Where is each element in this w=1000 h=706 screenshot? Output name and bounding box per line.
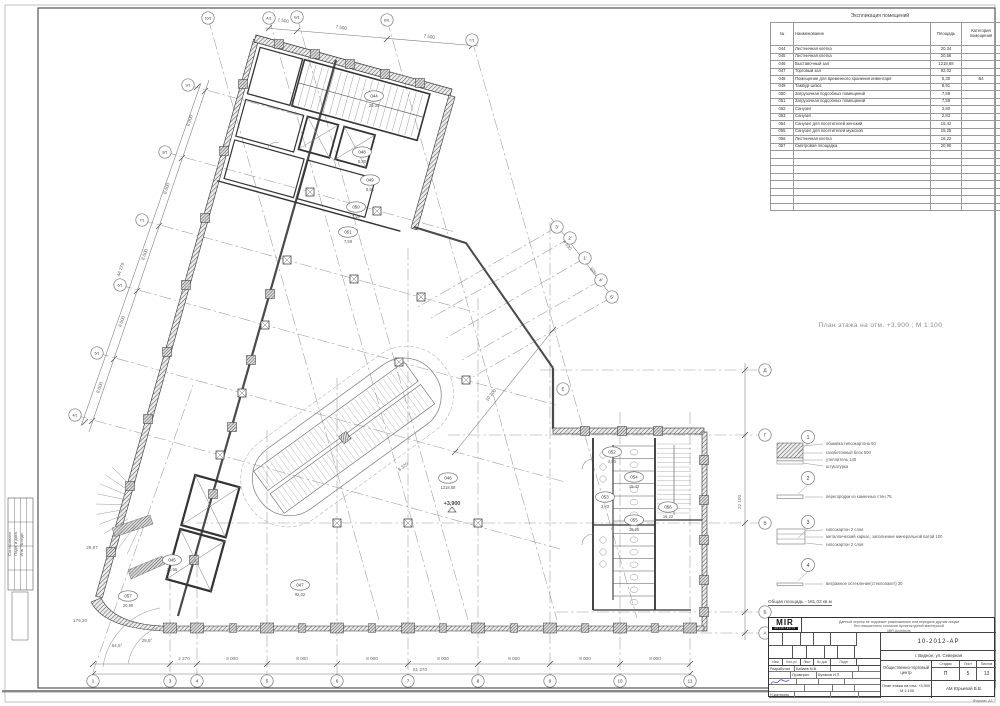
table-row: 053Санузел2,83	[771, 113, 1000, 121]
legend-item-number: 1	[807, 435, 810, 441]
axis-column	[261, 623, 274, 633]
staff-signature-table: РазработалБабаев М.В.ПроверилБунаков И.П…	[769, 666, 881, 698]
title-block: MIR ARCHITECTS Данный чертеж не подлежит…	[768, 617, 995, 697]
legend-item-3-label-1: гипсокартон 2 слоя	[826, 527, 863, 532]
legend-item-3-label-2: металлический каркас, заполнение минерал…	[826, 534, 942, 539]
revision-cell	[793, 646, 807, 659]
explication-cell: 7,59	[931, 91, 962, 99]
explication-cell	[794, 188, 931, 196]
legend-item-number: 4	[807, 563, 810, 569]
explication-cell	[962, 113, 1000, 121]
explication-cell	[931, 166, 962, 174]
dim-label: 8 000	[296, 656, 308, 661]
explication-cell	[771, 173, 794, 181]
room-number: 048	[358, 150, 366, 155]
axis-column	[472, 623, 485, 633]
dim-label: 8 000	[366, 656, 378, 661]
dim-label: 29,5°	[142, 638, 153, 643]
dim-label: 2 270	[178, 656, 190, 661]
sheet-value: 5	[960, 668, 977, 681]
revision-cell	[814, 633, 831, 646]
room-number: 049	[366, 178, 374, 183]
explication-cell	[771, 181, 794, 189]
explication-col-cat: Категория помещения	[962, 23, 1000, 46]
explication-cell	[931, 203, 962, 211]
axis-bubble-label: 5/1	[95, 352, 100, 356]
dim-label: 44 270	[116, 262, 125, 277]
axis-bubble-label: 4/1	[73, 414, 78, 418]
wall-column	[220, 147, 229, 156]
explication-cell	[962, 46, 1000, 54]
object-name: г. Видное, ул. Северная	[881, 651, 996, 661]
elevation-mark: +3,900	[444, 501, 461, 507]
explication-cell: 046	[771, 61, 794, 69]
table-row: 046Выставочный зал1218,68	[771, 61, 1000, 69]
wall-column	[618, 427, 627, 436]
axis-bubble-label: 8/1	[163, 151, 168, 155]
project-name: Общественно-торговый центр	[881, 661, 932, 681]
room-number: 056	[664, 505, 672, 510]
wall-column	[163, 348, 172, 357]
room-area: 20,56	[167, 567, 178, 572]
revision-cell	[831, 633, 857, 646]
explication-cell: Смотровая площадка	[794, 143, 931, 151]
explication-cell: Помещение для временного хранения инвент…	[794, 76, 931, 84]
company-logo: MIR ARCHITECTS	[769, 618, 802, 633]
explication-cell	[794, 151, 931, 159]
change-table-headers: ИзмКол.учЛист№ докПодпДата	[769, 659, 881, 666]
explication-cell: 044	[771, 46, 794, 54]
explication-cell: 20,56	[931, 53, 962, 61]
wall-column	[266, 290, 275, 299]
stair-elevator-core-bottom-left	[96, 467, 239, 592]
dim-label: 179,30	[73, 618, 87, 623]
dim-label: 8 000	[508, 656, 520, 661]
wall-column	[416, 79, 425, 88]
explication-cell	[771, 196, 794, 204]
table-row: 047Торговый зал92,02	[771, 68, 1000, 76]
axis-bubble-label: 6	[336, 679, 339, 684]
explication-cell	[931, 196, 962, 204]
explication-cell	[962, 188, 1000, 196]
room-number: 052	[608, 450, 616, 455]
axis-bubble-label: 10/1	[205, 17, 212, 21]
table-row: 049Тамбур-шлюз8,91	[771, 83, 1000, 91]
axis-bubble-label: 8	[477, 679, 480, 684]
legend-item-2-label-1: перегородки из каменных стен 75	[826, 494, 892, 499]
explication-title: Экспликация помещений	[770, 13, 990, 22]
room-area: 5,30	[358, 159, 367, 164]
wall-column	[239, 80, 248, 89]
room-area: 16,22	[663, 514, 674, 519]
wall-column	[107, 548, 116, 557]
explication-cell: Выставочный зал	[794, 61, 931, 69]
stage-sheet-table: Стадия Лист Листов П 5 13	[932, 661, 996, 681]
table-row-empty	[771, 173, 1000, 181]
change-col-header: № док	[814, 659, 831, 666]
stage-value: П	[932, 668, 960, 681]
explication-cell: Санузел для посетителей мужской	[794, 128, 931, 136]
axis-bubble-label: 9/1	[186, 84, 191, 88]
axis-bubble-label: 1'	[583, 256, 587, 261]
plan-title: План этажа на отм. +3,900 ; М 1:100	[788, 322, 973, 329]
wall-column	[209, 490, 218, 499]
room-area: 1218,68	[441, 485, 457, 490]
side-stamp-label-3: Инв. № подл.	[19, 500, 27, 588]
explication-cell: 048	[771, 76, 794, 84]
wall-column	[144, 415, 153, 424]
explication-cell	[962, 98, 1000, 106]
stair-elevator-core-top	[217, 46, 437, 231]
explication-cell: 057	[771, 143, 794, 151]
explication-cell: 2,80	[931, 106, 962, 114]
explication-cell	[794, 173, 931, 181]
axis-bubble-label: 3	[169, 679, 172, 684]
explication-cell: 051	[771, 98, 794, 106]
room-number: 050	[352, 205, 360, 210]
axis-bubble-label: Е	[561, 387, 564, 392]
axis-column	[684, 623, 697, 633]
explication-cell	[962, 151, 1000, 159]
wall-column	[346, 60, 355, 69]
pilaster	[440, 624, 447, 633]
wall-column	[247, 356, 256, 365]
explication-cell	[794, 196, 931, 204]
wall-column	[311, 50, 320, 59]
table-row: 044Лестничная клетка20,34	[771, 46, 1000, 54]
dim-label: 7 500	[423, 33, 436, 40]
explication-cell	[962, 166, 1000, 174]
explication-col-area: Площадь	[931, 23, 962, 46]
explication-cell: 045	[771, 53, 794, 61]
stage-label: Стадия	[932, 661, 960, 668]
explication-cell	[794, 158, 931, 166]
table-row: 055Санузел для посетителей мужской15,25	[771, 128, 1000, 136]
axis-bubble-label: В	[763, 521, 766, 526]
axis-bubble-label: А/1	[266, 17, 271, 21]
explication-body: 044Лестничная клетка20,34 045Лестничная …	[771, 46, 1000, 211]
legend-item-3-label-3: гипсокартон 2 слоя	[826, 542, 863, 547]
pilaster	[511, 624, 518, 633]
explication-cell	[962, 203, 1000, 211]
wall-column	[201, 214, 210, 223]
explication-cell: 5,30	[931, 76, 962, 84]
legend-graphics	[777, 443, 823, 586]
table-row: 056Лестничная клетка16,22	[771, 136, 1000, 144]
explication-cell: Лестничная клетка	[794, 53, 931, 61]
room-area: 2,80	[608, 459, 617, 464]
explication-cell: Торговый зал	[794, 68, 931, 76]
explication-cell	[771, 203, 794, 211]
explication-col-name: Наименование	[794, 23, 931, 46]
explication-cell	[794, 203, 931, 211]
table-row: 050Загрузочная подсобных помещений7,59	[771, 91, 1000, 99]
format-note: Формат А1	[938, 698, 993, 703]
explication-cell	[962, 173, 1000, 181]
room-number: 044	[370, 94, 378, 99]
room-number: 046	[444, 476, 452, 481]
explication-cell: 16,22	[931, 136, 962, 144]
wall-column	[182, 281, 191, 290]
legend-item-1-label-1: обшивка гипсокартона 50	[826, 441, 876, 446]
explication-cell	[771, 158, 794, 166]
explication-cell: 15,25	[931, 128, 962, 136]
explication-cell	[962, 83, 1000, 91]
explication-cell	[962, 68, 1000, 76]
wall-column	[275, 40, 284, 49]
table-row-empty	[771, 188, 1000, 196]
explication-cell: 052	[771, 106, 794, 114]
room-number: 051	[344, 230, 352, 235]
explication-cell: Загрузочная подсобных помещений	[794, 91, 931, 99]
axis-bubble-label: 6/1	[118, 284, 123, 288]
explication-cell	[794, 181, 931, 189]
pilaster	[582, 624, 589, 633]
dim-label: 1 500	[277, 17, 290, 24]
sheet-name: План этажа на отм. +3,900 ; М 1:100	[881, 681, 932, 698]
wall-column	[700, 536, 709, 545]
explication-cell	[962, 136, 1000, 144]
legend-note: Общая площадь - 181,03 кв.м	[768, 599, 832, 606]
table-row-empty	[771, 166, 1000, 174]
legend-item-number: 2	[807, 476, 810, 482]
explication-cell: 053	[771, 113, 794, 121]
legend-item-4-label-1: витражное остекление(стеклопакет) 30	[826, 581, 903, 586]
explication-cell: 054	[771, 121, 794, 129]
axis-bubble-label: Г/1	[470, 39, 475, 43]
explication-cell	[771, 151, 794, 159]
dim-label: 61 270	[413, 667, 427, 672]
room-number: 055	[630, 518, 638, 523]
room-number: 054	[630, 475, 638, 480]
revision-grid	[769, 633, 881, 659]
room-area: 15,25	[629, 527, 640, 532]
pilaster	[369, 624, 376, 633]
explication-cell	[771, 166, 794, 174]
sheets-label: Листов	[977, 661, 996, 668]
wall-column	[581, 427, 590, 436]
dim-label: 64,5°	[112, 643, 123, 648]
axis-bubble-label: 9	[549, 679, 552, 684]
explication-cell	[962, 53, 1000, 61]
dim-label: 10 300	[484, 388, 497, 402]
axis-bubble-label: Б	[763, 610, 766, 615]
explication-cell	[931, 181, 962, 189]
dim-label: 500	[589, 267, 598, 276]
legend-item-1-label-2: газобетонный блок 500	[826, 450, 871, 455]
document-number: 10-2012-АР	[881, 633, 996, 651]
explication-cell	[771, 188, 794, 196]
dim-label: 8 000	[117, 315, 126, 328]
change-col-header: Изм	[769, 659, 783, 666]
explication-cell	[962, 91, 1000, 99]
explication-cell	[962, 143, 1000, 151]
change-col-header: Подп	[831, 659, 857, 666]
wall-column	[700, 608, 709, 617]
room-area: 20,90	[123, 603, 134, 608]
dim-label: 8 000	[649, 656, 661, 661]
axis-bubble-label: 10	[617, 679, 623, 684]
table-row: 045Лестничная клетка20,56	[771, 53, 1000, 61]
axis-bubble-label: 7/1	[140, 219, 145, 223]
revision-cell	[769, 646, 793, 659]
dim-label: 8 000	[437, 656, 449, 661]
escalators	[222, 328, 471, 545]
dim-label: 8 000	[140, 248, 149, 261]
sheet-label: Лист	[960, 661, 977, 668]
dim-label: 8 000	[185, 114, 194, 127]
explication-cell: Лестничная клетка	[794, 46, 931, 54]
wall-column	[700, 456, 709, 465]
legend-item-1-label-4: штукатурка	[826, 464, 848, 469]
axis-bubble-label: 7	[407, 679, 410, 684]
explication-cell: Санузел	[794, 106, 931, 114]
table-row: 052Санузел2,80	[771, 106, 1000, 114]
axis-column	[164, 623, 177, 633]
revision-cell	[769, 633, 783, 646]
table-row: 051Загрузочная подсобных помещений7,59	[771, 98, 1000, 106]
wall-column	[700, 576, 709, 585]
table-row-empty	[771, 203, 1000, 211]
room-area: 2,83	[601, 504, 610, 509]
room-number: 045	[168, 558, 176, 563]
axis-bubble-label: 5	[266, 679, 269, 684]
pilaster	[299, 624, 306, 633]
table-row-empty	[771, 196, 1000, 204]
explication-cell	[962, 128, 1000, 136]
explication-cell: Санузел	[794, 113, 931, 121]
axis-column	[544, 623, 557, 633]
wall-column	[700, 496, 709, 505]
explication-cell: 1218,68	[931, 61, 962, 69]
axis-bubble-label: 5'	[610, 295, 614, 300]
axis-bubble-label: Б/1	[294, 16, 299, 20]
room-area: 15,42	[629, 484, 640, 489]
explication-cell	[962, 106, 1000, 114]
explication-cell	[931, 188, 962, 196]
axis-bubble-label: В/1	[384, 19, 389, 23]
revision-cell	[807, 646, 825, 659]
room-area: 92,02	[295, 592, 306, 597]
explication-cell	[962, 121, 1000, 129]
room-area: 20,34	[369, 103, 380, 108]
table-row: 054Санузел для посетителей женский15,42	[771, 121, 1000, 129]
logo-text: MIR	[769, 619, 801, 627]
axis-bubble-label: 4	[196, 679, 199, 684]
dim-label: 22 100	[737, 495, 742, 509]
dim-label: 7 500	[335, 24, 348, 31]
explication-cell: Санузел для посетителей женский	[794, 121, 931, 129]
axis-bubble-label: 4'	[599, 278, 603, 283]
copyright-disclaimer: Данный чертеж не подлежит размножению ил…	[802, 618, 996, 633]
explication-cell	[931, 158, 962, 166]
explication-cell: 049	[771, 83, 794, 91]
explication-cell	[962, 61, 1000, 69]
revision-cell	[801, 633, 814, 646]
room-number: 057	[124, 594, 132, 599]
explication-cell	[962, 196, 1000, 204]
legend-item-number: 3	[807, 520, 810, 526]
explication-cell: Загрузочная подсобных помещений	[794, 98, 931, 106]
explication-cell: 15,42	[931, 121, 962, 129]
explication-cell: В4	[962, 76, 1000, 84]
change-col-header: Кол.уч	[783, 659, 801, 666]
signature-scribble	[770, 679, 790, 685]
explication-cell: 92,02	[931, 68, 962, 76]
table-row: 057Смотровая площадка20,90	[771, 143, 1000, 151]
explication-cell: 20,34	[931, 46, 962, 54]
change-col-header: Лист	[801, 659, 814, 666]
explication-col-num: №	[771, 23, 794, 46]
drawing-sheet: 134567891011ДГВБА4/15/16/17/18/19/110/1А…	[0, 0, 1000, 706]
wall-column	[381, 70, 390, 79]
room-area: 8,91	[366, 187, 375, 192]
dim-label: 8 000	[226, 656, 238, 661]
table-row-empty	[771, 181, 1000, 189]
table-row-empty	[771, 158, 1000, 166]
legend-item-1-label-3: утеплитель 140	[826, 457, 856, 462]
explication-cell: 056	[771, 136, 794, 144]
pilaster	[652, 624, 659, 633]
revision-cell	[783, 633, 801, 646]
axis-column	[614, 623, 627, 633]
axis-column	[331, 623, 344, 633]
explication-cell: 8,91	[931, 83, 962, 91]
explication-cell: 2,83	[931, 113, 962, 121]
explication-cell	[962, 158, 1000, 166]
logo-subtext: ARCHITECTS	[772, 627, 798, 630]
axis-bubble-label: 3'	[555, 225, 559, 230]
wall-column	[654, 427, 663, 436]
axis-bubble-label: 1	[92, 679, 95, 684]
sheets-value: 13	[977, 668, 996, 681]
table-row-empty	[771, 151, 1000, 159]
explication-cell: 20,90	[931, 143, 962, 151]
dim-label: 29,87	[86, 545, 98, 550]
explication-cell: Лестничная клетка	[794, 136, 931, 144]
axis-bubble-label: 11	[688, 679, 693, 684]
axis-column	[402, 623, 415, 633]
explication-cell: 047	[771, 68, 794, 76]
revision-cell	[825, 646, 838, 659]
explication-cell	[794, 166, 931, 174]
table-row: 048Помещение для временного хранения инв…	[771, 76, 1000, 84]
explication-cell: 7,59	[931, 98, 962, 106]
revision-cell	[838, 646, 855, 659]
dim-label: 8 000	[579, 656, 591, 661]
wall-column	[228, 423, 237, 432]
dim-label: 8 320	[397, 461, 410, 472]
room-number: 053	[601, 495, 609, 500]
axis-column	[191, 623, 204, 633]
firm-name: АМ Юрьевой В.В.	[932, 681, 996, 698]
axis-bubble-label: 2'	[568, 236, 572, 241]
toilet-stair-block	[582, 438, 702, 610]
explication-cell: 050	[771, 91, 794, 99]
room-explication-table: Экспликация помещений № Наименование Пло…	[770, 13, 990, 211]
explication-cell: 055	[771, 128, 794, 136]
room-area: 7,59	[344, 239, 353, 244]
dim-label: 8 000	[162, 182, 171, 195]
explication-cell	[962, 181, 1000, 189]
pilaster	[230, 624, 237, 633]
explication-cell: Тамбур-шлюз	[794, 83, 931, 91]
explication-cell	[931, 173, 962, 181]
room-area: 7,59	[352, 214, 361, 219]
room-number: 047	[296, 583, 304, 588]
explication-cell	[931, 151, 962, 159]
